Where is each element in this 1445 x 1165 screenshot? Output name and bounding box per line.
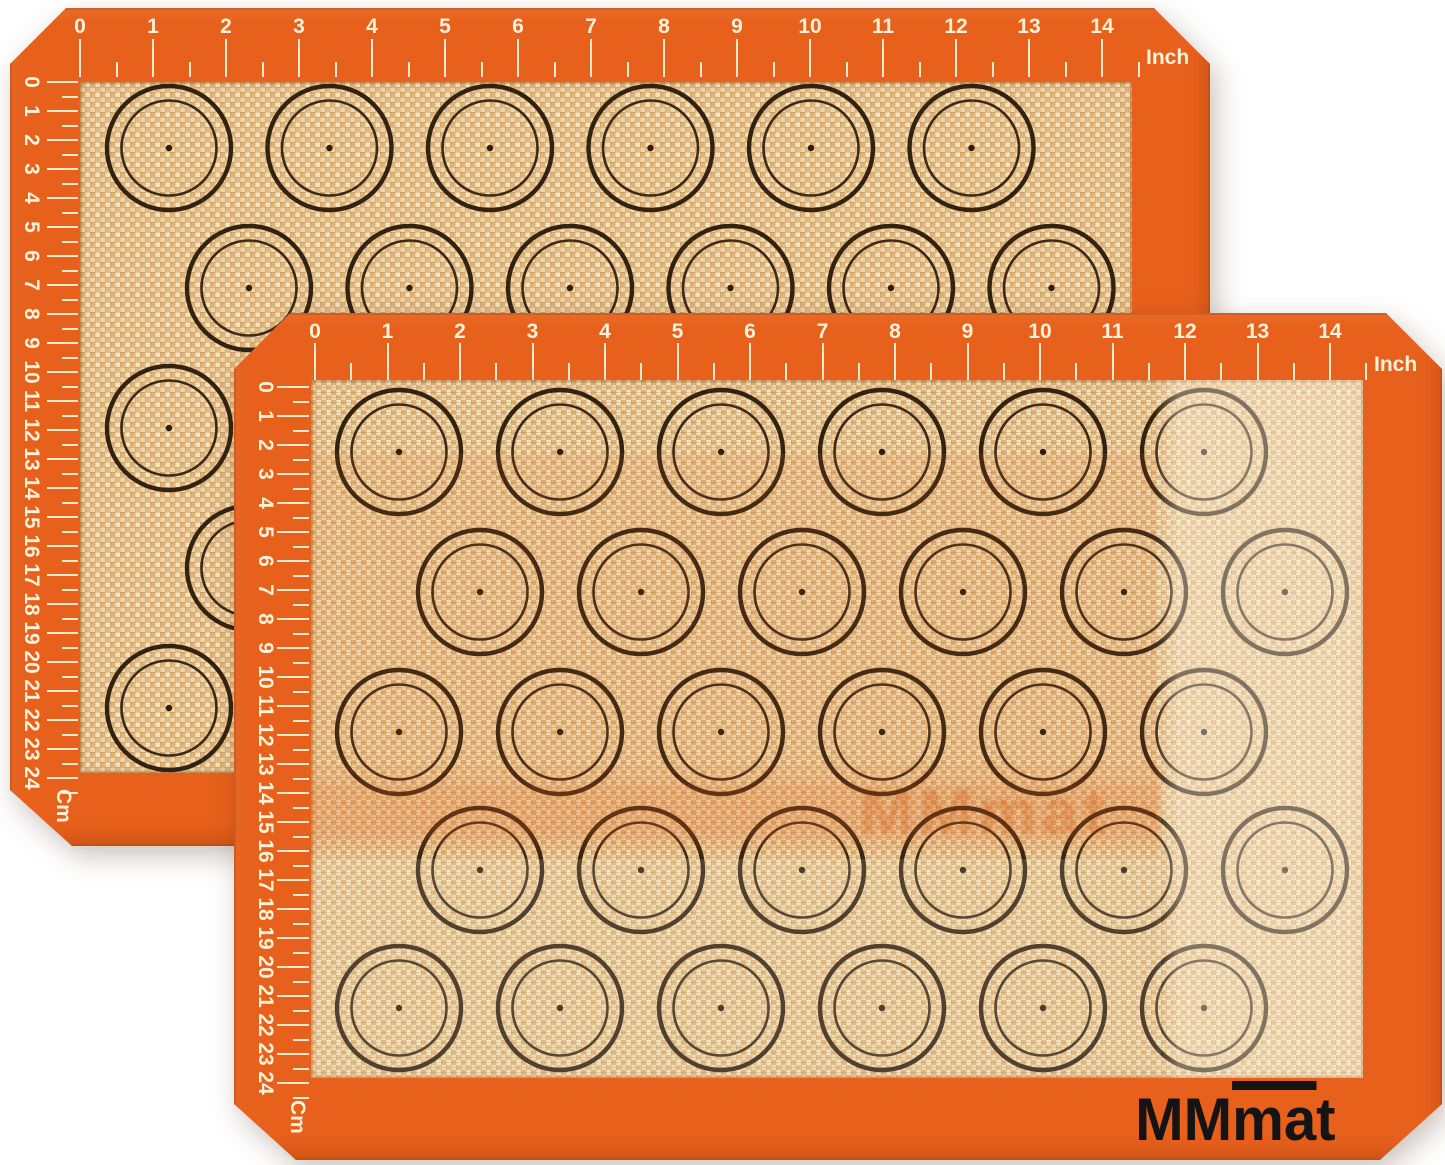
macaron-guide-circle — [268, 86, 392, 210]
macaron-guide-circle — [498, 946, 622, 1070]
circle-center-dot — [557, 1005, 563, 1011]
macaron-guide-circle — [659, 670, 783, 794]
circle-center-dot — [1201, 449, 1207, 455]
macaron-guide-circle — [981, 390, 1105, 514]
circle-center-dot — [166, 425, 172, 431]
macaron-guide-circle — [981, 946, 1105, 1070]
circle-center-dot — [1121, 867, 1127, 873]
macaron-guide-circle — [498, 390, 622, 514]
macaron-guide-circle — [337, 946, 461, 1070]
cm-unit-label: Cm — [285, 1100, 309, 1126]
circle-center-dot — [1282, 589, 1288, 595]
macaron-guide-circle — [579, 808, 703, 932]
circle-center-dot — [1040, 449, 1046, 455]
circle-center-dot — [1201, 1005, 1207, 1011]
macaron-guide-circle — [107, 366, 231, 490]
macaron-guide-circle — [418, 530, 542, 654]
macaron-guide-circle — [1142, 670, 1266, 794]
circle-center-dot — [567, 285, 573, 291]
brand-logo-t: t — [1316, 1086, 1335, 1153]
macaron-guide-circle — [659, 390, 783, 514]
circle-center-dot — [396, 449, 402, 455]
circle-center-dot — [557, 729, 563, 735]
circle-center-dot — [1040, 729, 1046, 735]
circle-center-dot — [1040, 1005, 1046, 1011]
circle-center-dot — [727, 285, 733, 291]
circle-center-dot — [477, 867, 483, 873]
macaron-guide-circle — [498, 670, 622, 794]
macaron-guide-circle — [820, 670, 944, 794]
macaron-guide-circle — [337, 390, 461, 514]
baking-mat-front-body: MMmat 01234567891011121314 0123456789101… — [234, 313, 1442, 1160]
circle-center-dot — [960, 589, 966, 595]
circle-center-dot — [1048, 285, 1054, 291]
circle-center-dot — [718, 729, 724, 735]
circle-center-dot — [487, 145, 493, 151]
circle-center-dot — [799, 589, 805, 595]
macaron-guide-circle — [589, 86, 713, 210]
circle-center-dot — [718, 449, 724, 455]
product-photo-silicone-baking-mats: 01234567891011121314 0123456789101112131… — [0, 0, 1445, 1165]
circle-center-dot — [557, 449, 563, 455]
circle-center-dot — [166, 145, 172, 151]
macaron-guide-circle — [1062, 530, 1186, 654]
circle-center-dot — [808, 145, 814, 151]
macaron-guide-circle — [418, 808, 542, 932]
macaron-circle-grid — [234, 313, 1442, 1160]
circle-center-dot — [406, 285, 412, 291]
circle-center-dot — [960, 867, 966, 873]
circle-center-dot — [1201, 729, 1207, 735]
macaron-guide-circle — [901, 808, 1025, 932]
circle-center-dot — [968, 145, 974, 151]
baking-mat-front: MMmat 01234567891011121314 0123456789101… — [234, 313, 1442, 1160]
macaron-guide-circle — [820, 390, 944, 514]
macaron-guide-circle — [107, 86, 231, 210]
macaron-guide-circle — [1223, 530, 1347, 654]
macaron-guide-circle — [981, 670, 1105, 794]
brand-logo-mm: MM — [1135, 1086, 1232, 1153]
circle-center-dot — [246, 285, 252, 291]
macaron-guide-circle — [740, 808, 864, 932]
circle-center-dot — [396, 1005, 402, 1011]
circle-center-dot — [166, 705, 172, 711]
macaron-guide-circle — [820, 946, 944, 1070]
circle-center-dot — [879, 449, 885, 455]
macaron-guide-circle — [749, 86, 873, 210]
macaron-guide-circle — [659, 946, 783, 1070]
macaron-guide-circle — [910, 86, 1034, 210]
macaron-guide-circle — [740, 530, 864, 654]
macaron-guide-circle — [107, 646, 231, 770]
inch-unit-label: Inch — [1374, 353, 1417, 377]
circle-center-dot — [1121, 589, 1127, 595]
macaron-guide-circle — [428, 86, 552, 210]
circle-center-dot — [638, 867, 644, 873]
circle-center-dot — [638, 589, 644, 595]
circle-center-dot — [396, 729, 402, 735]
brand-logo: MMmat — [1135, 1081, 1335, 1150]
circle-center-dot — [888, 285, 894, 291]
cm-unit-label: Cm — [51, 789, 75, 815]
circle-center-dot — [879, 1005, 885, 1011]
macaron-guide-circle — [1062, 808, 1186, 932]
inch-unit-label: Inch — [1146, 46, 1189, 70]
circle-center-dot — [477, 589, 483, 595]
circle-center-dot — [326, 145, 332, 151]
circle-center-dot — [1282, 867, 1288, 873]
macaron-guide-circle — [901, 530, 1025, 654]
macaron-guide-circle — [1142, 390, 1266, 514]
circle-center-dot — [799, 867, 805, 873]
circle-center-dot — [718, 1005, 724, 1011]
circle-center-dot — [647, 145, 653, 151]
circle-center-dot — [879, 729, 885, 735]
macaron-guide-circle — [337, 670, 461, 794]
macaron-guide-circle — [1223, 808, 1347, 932]
brand-logo-ma: ma — [1232, 1081, 1316, 1150]
macaron-guide-circle — [1142, 946, 1266, 1070]
macaron-guide-circle — [579, 530, 703, 654]
